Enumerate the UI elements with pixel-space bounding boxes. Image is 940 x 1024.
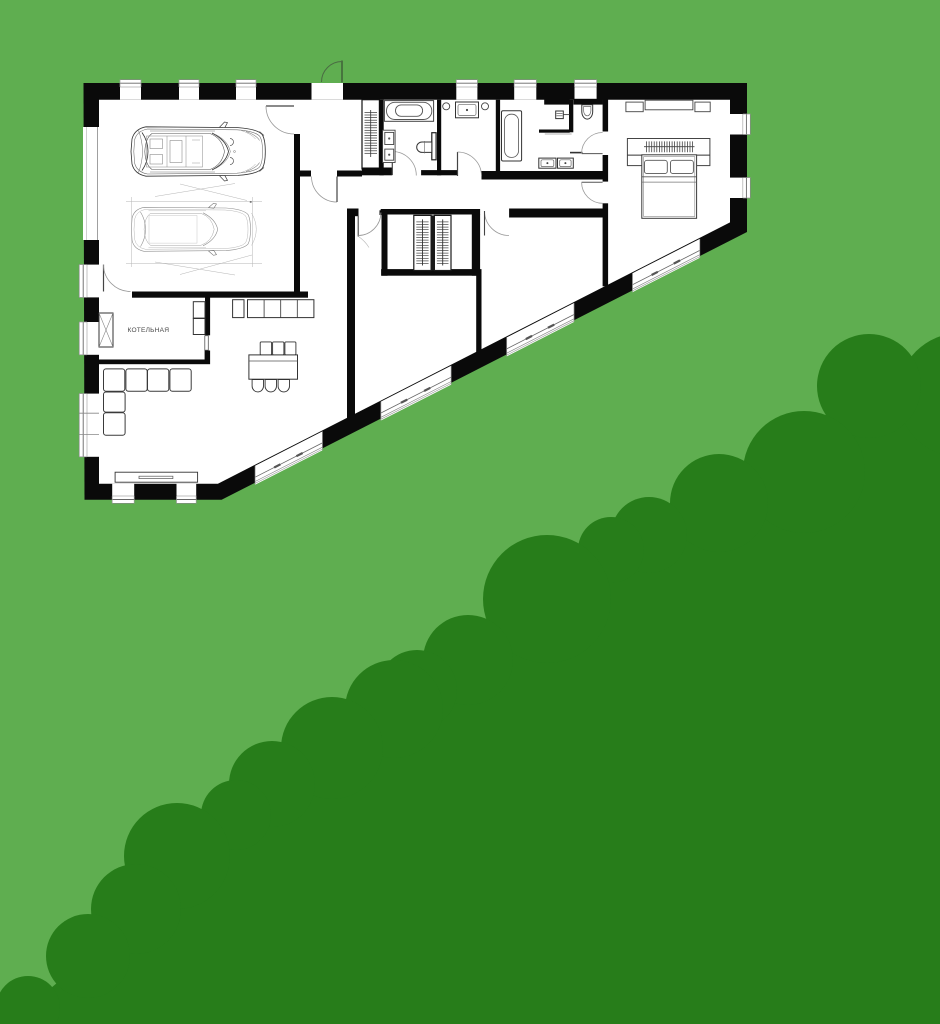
svg-text:КОТЕЛЬНАЯ: КОТЕЛЬНАЯ <box>128 327 170 334</box>
